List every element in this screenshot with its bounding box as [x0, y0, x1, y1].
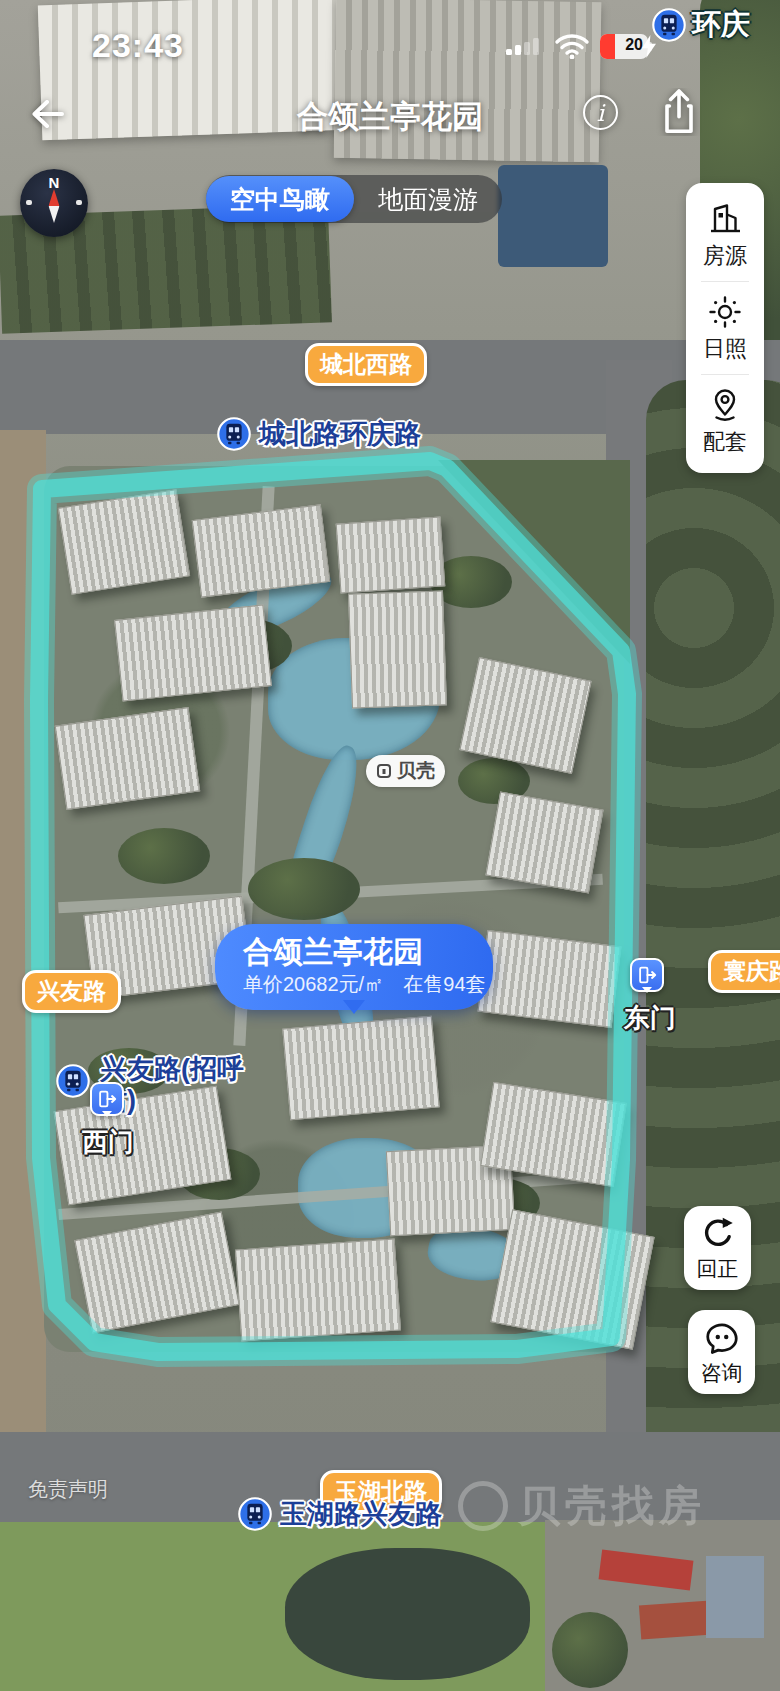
map-marker-east-gate[interactable]: 东门: [630, 958, 676, 1036]
sidebar-item-listings[interactable]: 房源: [686, 189, 764, 281]
gate-label: 东门: [624, 1001, 676, 1036]
beike-logo-icon: [376, 763, 392, 779]
battery-percent: 20: [625, 36, 643, 54]
beike-watermark: 贝壳找房: [458, 1478, 706, 1534]
map-marker-metro-south[interactable]: 玉湖路兴友路: [238, 1496, 442, 1532]
bubble-property-name: 合颂兰亭花园: [243, 936, 486, 968]
satellite-map[interactable]: 23:43 20 环庆 合颂兰亭花园 i: [0, 0, 780, 1691]
building-icon: [707, 201, 743, 237]
corner-station-label: 环庆: [692, 5, 750, 45]
chat-bubble-icon: [703, 1319, 741, 1357]
compass-needle-icon: [46, 189, 63, 206]
metro-station-label: 玉湖路兴友路: [280, 1496, 442, 1532]
gate-label: 西门: [82, 1125, 134, 1160]
reset-rotation-button[interactable]: 回正: [684, 1206, 751, 1290]
battery-icon: 20: [600, 34, 648, 59]
metro-station-label: 城北路环庆路: [259, 416, 421, 452]
share-button[interactable]: [656, 88, 702, 136]
view-mode-toggle: 空中鸟瞰 地面漫游: [206, 175, 502, 223]
watermark-logo-icon: [458, 1481, 508, 1531]
compass-north-label: N: [49, 174, 60, 191]
map-marker-west-gate[interactable]: 西门: [90, 1082, 134, 1160]
metro-icon: [56, 1064, 90, 1098]
tab-aerial-view[interactable]: 空中鸟瞰: [206, 176, 354, 222]
road-label-west: 兴友路: [22, 970, 121, 1013]
sun-icon: [707, 294, 743, 330]
map-marker-metro-north[interactable]: 城北路环庆路: [217, 416, 421, 452]
gate-exit-icon: [96, 1088, 118, 1110]
tab-ground-view[interactable]: 地面漫游: [354, 177, 502, 221]
gate-exit-icon: [636, 964, 658, 986]
map-marker-metro-west[interactable]: 兴友路(招呼站): [56, 1054, 268, 1116]
beike-badge: 贝壳: [366, 755, 445, 787]
wifi-icon: [554, 33, 590, 59]
bubble-listings-count: 在售94套: [403, 973, 485, 995]
sidebar-item-amenities[interactable]: 配套: [686, 375, 764, 467]
sidebar-item-sunlight[interactable]: 日照: [686, 282, 764, 374]
compass[interactable]: N: [20, 169, 88, 237]
metro-icon: [652, 8, 686, 42]
watermark-text: 贝壳找房: [518, 1478, 706, 1534]
map-marker-metro-corner[interactable]: 环庆: [652, 5, 750, 45]
property-info-bubble[interactable]: 合颂兰亭花园 单价20682元/㎡ 在售94套: [215, 924, 493, 1010]
status-time: 23:43: [92, 26, 184, 65]
side-tool-panel: 房源 日照 配套: [686, 183, 764, 473]
road-label-north: 城北西路: [305, 343, 427, 386]
metro-icon: [238, 1497, 272, 1531]
metro-icon: [217, 417, 251, 451]
info-button[interactable]: i: [583, 95, 618, 130]
signal-strength-icon: [506, 38, 539, 55]
map-pin-icon: [707, 387, 743, 423]
disclaimer-link[interactable]: 免责声明: [28, 1476, 108, 1503]
bubble-unit-price: 单价20682元/㎡: [243, 973, 384, 995]
road-label-east: 寰庆路: [708, 950, 780, 993]
consult-button[interactable]: 咨询: [688, 1310, 755, 1394]
info-icon: i: [597, 100, 604, 126]
rotate-reset-icon: [699, 1215, 737, 1253]
